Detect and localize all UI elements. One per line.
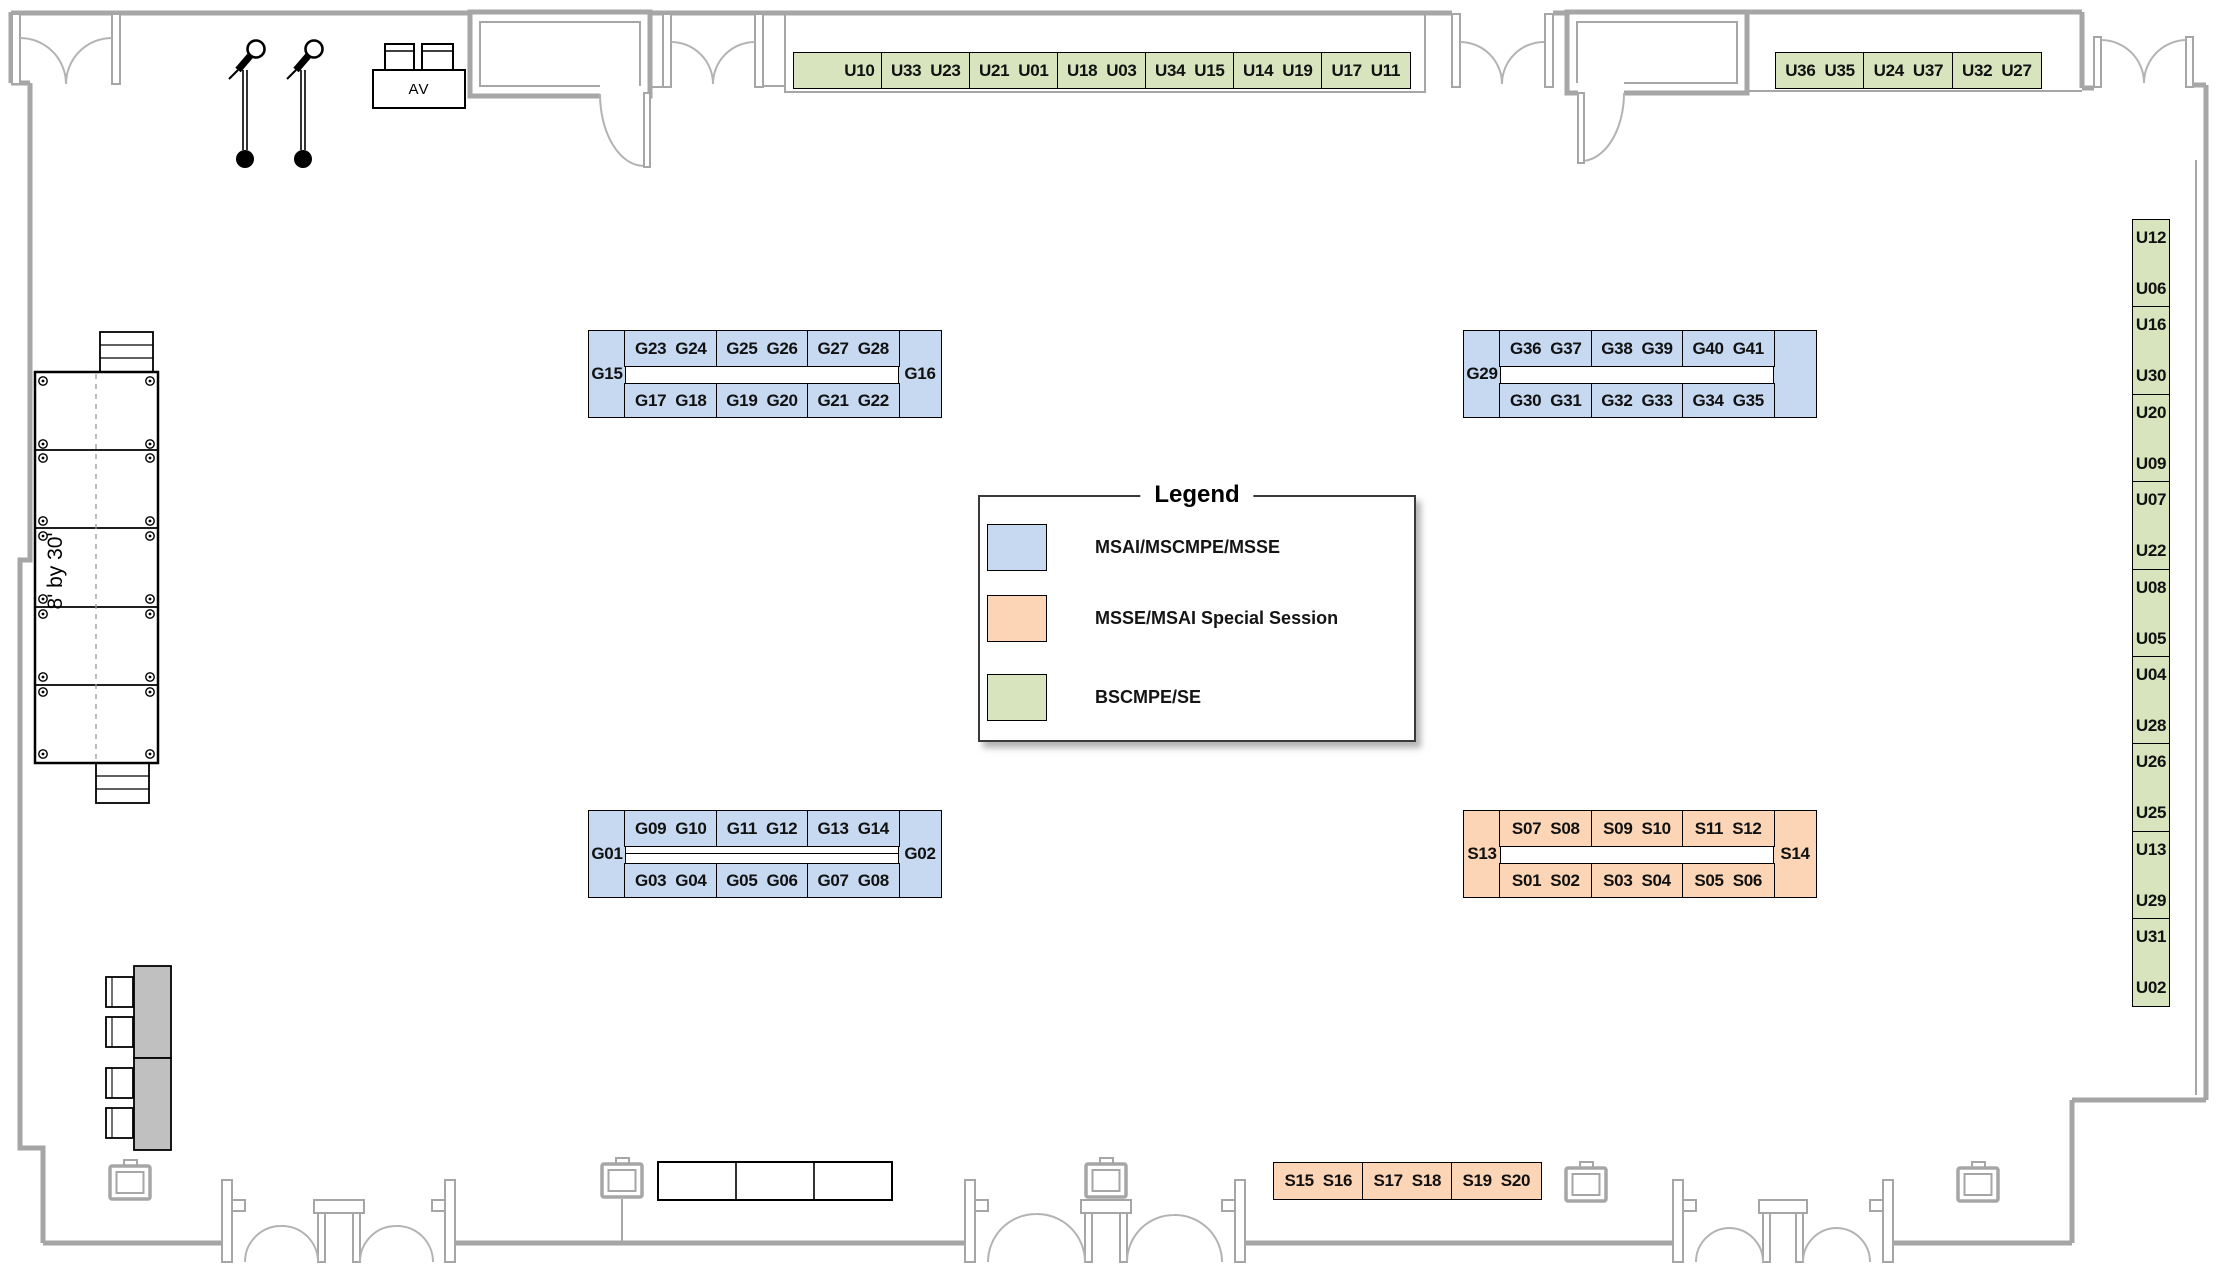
- double-door-top-left: [12, 14, 120, 84]
- av-table-label: AV: [373, 70, 465, 108]
- legend-title: Legend: [1140, 481, 1253, 509]
- booth-label: G05: [726, 871, 757, 891]
- booth-label: G33: [1641, 391, 1672, 411]
- booth-cell: G11G12: [716, 810, 809, 847]
- booth-label: G41: [1733, 339, 1764, 359]
- booth-label: S02: [1550, 871, 1579, 891]
- booth-label: G01: [591, 844, 622, 864]
- booth-label: U28: [2136, 716, 2166, 736]
- booth-cell: U31U02: [2132, 918, 2170, 1007]
- booth-cluster-nw: G15G16G23G24G25G26G27G28G17G18G19G20G21G…: [588, 330, 942, 418]
- booth-cell: G25G26: [716, 330, 809, 367]
- booth-cell: U32U27: [1952, 52, 2042, 89]
- booth-label: S20: [1501, 1171, 1530, 1191]
- booth-label: U21: [979, 61, 1009, 81]
- booth-label: U29: [2136, 891, 2166, 911]
- booth-cell: G02: [898, 810, 942, 898]
- buffet-table: [658, 1162, 892, 1200]
- booth-label: G02: [904, 844, 935, 864]
- legend-item: MSAI/MSCMPE/MSSE: [987, 524, 1280, 571]
- booth-cell: S19S20: [1451, 1162, 1542, 1200]
- booth-label: S08: [1550, 819, 1579, 839]
- booth-label: U03: [1106, 61, 1136, 81]
- booth-label: S11: [1695, 819, 1723, 839]
- booth-cell: G05G06: [716, 863, 809, 898]
- booth-cell: G21G22: [807, 383, 900, 418]
- booth-cell: S01S02: [1499, 863, 1592, 898]
- legend-swatch-icon: [987, 524, 1047, 571]
- booth-label: G28: [858, 339, 889, 359]
- booth-label: U19: [1282, 61, 1312, 81]
- booth-cell: U33U23: [881, 52, 971, 89]
- booth-label: G10: [675, 819, 706, 839]
- booth-strip-top: U10U33U23U21U01U18U03U34U15U14U19U17U11: [793, 52, 1411, 89]
- booth-label: S05: [1694, 871, 1723, 891]
- booth-label: G14: [858, 819, 889, 839]
- booth-label: S12: [1732, 819, 1761, 839]
- booth-label: G24: [675, 339, 706, 359]
- booth-label: U22: [2136, 541, 2166, 561]
- booth-label: G12: [766, 819, 797, 839]
- booth-label: U06: [2136, 279, 2166, 299]
- door-group-bottom-left: [222, 1180, 455, 1262]
- booth-label: U02: [2136, 978, 2166, 998]
- booth-label: G25: [726, 339, 757, 359]
- booth-cell: G07G08: [807, 863, 900, 898]
- trash-cans: [110, 1158, 1998, 1201]
- booth-label: G15: [591, 364, 622, 384]
- legend-swatch-icon: [987, 595, 1047, 642]
- booth-cell: G15: [588, 330, 626, 418]
- booth-label: G27: [817, 339, 848, 359]
- booth-label: G36: [1510, 339, 1541, 359]
- booth-cell: G27G28: [807, 330, 900, 367]
- booth-cluster-se: S13S14S07S08S09S10S11S12S01S02S03S04S05S…: [1463, 810, 1817, 898]
- booth-cell: G17G18: [624, 383, 717, 418]
- booth-label: G32: [1601, 391, 1632, 411]
- booth-cell: G40G41: [1682, 330, 1775, 367]
- trash-can-icon: [1958, 1162, 1998, 1201]
- double-door-top-mid-right: [1452, 14, 1553, 87]
- booth-label: U12: [2136, 228, 2166, 248]
- booth-label: G06: [766, 871, 797, 891]
- chair-icon: [106, 977, 133, 1007]
- booth-label: S16: [1323, 1171, 1352, 1191]
- booth-cluster-ne: G29G36G37G38G39G40G41G30G31G32G33G34G35: [1463, 330, 1817, 418]
- booth-cell: U13U29: [2132, 831, 2170, 920]
- storage-room-left-door: [600, 93, 650, 167]
- booth-cell: U12U06: [2132, 219, 2170, 308]
- booth-label: U37: [1913, 61, 1943, 81]
- booth-cell: U07U22: [2132, 481, 2170, 570]
- booth-cell: G30G31: [1499, 383, 1592, 418]
- booth-label: U07: [2136, 490, 2166, 510]
- chairs: [106, 977, 133, 1138]
- booth-label: U33: [891, 61, 921, 81]
- booth-cell: G09G10: [624, 810, 717, 847]
- booth-cell: G13G14: [807, 810, 900, 847]
- booth-cell: G01: [588, 810, 626, 898]
- booth-label: G19: [726, 391, 757, 411]
- booth-label: U26: [2136, 752, 2166, 772]
- booth-cell: U20U09: [2132, 394, 2170, 483]
- booth-label: G30: [1510, 391, 1541, 411]
- booth-label: G22: [858, 391, 889, 411]
- booth-label: S15: [1284, 1171, 1313, 1191]
- storage-room-left: [470, 12, 650, 96]
- chair-icon: [106, 1108, 133, 1138]
- booth-label: G38: [1601, 339, 1632, 359]
- booth-cell: S07S08: [1499, 810, 1592, 847]
- booth-cell: S11S12: [1682, 810, 1775, 847]
- storage-room-right: [1567, 12, 1747, 93]
- booth-cell: U26U25: [2132, 743, 2170, 832]
- booth-label: U30: [2136, 366, 2166, 386]
- booth-label: G17: [635, 391, 666, 411]
- booth-label: G03: [635, 871, 666, 891]
- stage-size-label: 8' by 30': [44, 501, 70, 641]
- booth-label: U27: [2001, 61, 2031, 81]
- chair-icon: [106, 1068, 133, 1098]
- booth-cell: S03S04: [1591, 863, 1684, 898]
- booth-label: G23: [635, 339, 666, 359]
- stage-steps-bottom: [96, 763, 149, 803]
- booth-label: S17: [1373, 1171, 1402, 1191]
- booth-label: S01: [1512, 871, 1541, 891]
- booth-label: U36: [1785, 61, 1815, 81]
- cluster-divider: [625, 853, 899, 854]
- double-door-top-right: [2094, 37, 2193, 87]
- booth-label: U16: [2136, 315, 2166, 335]
- booth-cluster-sw: G01G02G09G10G11G12G13G14G03G04G05G06G07G…: [588, 810, 942, 898]
- booth-label: G20: [766, 391, 797, 411]
- booth-label: U01: [1018, 61, 1048, 81]
- booth-cell: U17U11: [1321, 52, 1411, 89]
- booth-cell: S14: [1773, 810, 1817, 898]
- booth-label: S18: [1412, 1171, 1441, 1191]
- booth-label: S03: [1603, 871, 1632, 891]
- booth-label: U09: [2136, 454, 2166, 474]
- booth-label: G08: [858, 871, 889, 891]
- booth-label: U25: [2136, 803, 2166, 823]
- booth-cell: G29: [1463, 330, 1501, 418]
- booth-label: G31: [1550, 391, 1581, 411]
- booth-label: G13: [817, 819, 848, 839]
- booth-label: U34: [1155, 61, 1185, 81]
- trash-can-icon: [1086, 1158, 1126, 1197]
- booth-label: S09: [1603, 819, 1632, 839]
- booth-label: G11: [727, 819, 757, 839]
- legend-item-label: MSSE/MSAI Special Session: [1095, 608, 1338, 629]
- booth-cell: U10: [793, 52, 883, 89]
- floor-plan: 8' by 30' AV U10U33U23U21U01U18U03U34U15…: [0, 0, 2219, 1275]
- booth-label: G29: [1466, 364, 1497, 384]
- booth-cell: G03G04: [624, 863, 717, 898]
- booth-cell: S05S06: [1682, 863, 1775, 898]
- door-group-bottom-right: [1673, 1180, 1893, 1262]
- booth-label: U32: [1962, 61, 1992, 81]
- booth-label: G04: [675, 871, 706, 891]
- registration-tables: [134, 966, 171, 1150]
- booth-label: S19: [1462, 1171, 1491, 1191]
- booth-cell: U14U19: [1233, 52, 1323, 89]
- chair-icon: [106, 1017, 133, 1047]
- booth-label: U04: [2136, 665, 2166, 685]
- booth-label: G07: [817, 871, 848, 891]
- booth-label: U24: [1874, 61, 1904, 81]
- booth-cell: G34G35: [1682, 383, 1775, 418]
- booth-label: U17: [1331, 61, 1361, 81]
- booth-cell: U21U01: [969, 52, 1059, 89]
- booth-label: U10: [844, 61, 874, 81]
- booth-cell: G23G24: [624, 330, 717, 367]
- booth-cell: U16U30: [2132, 306, 2170, 395]
- booth-strip-right: U12U06U16U30U20U09U07U22U08U05U04U28U26U…: [2132, 219, 2170, 1007]
- double-door-top-mid-left: [663, 14, 763, 87]
- booth-strip-south: S15S16S17S18S19S20: [1273, 1162, 1542, 1200]
- booth-cell: S13: [1463, 810, 1501, 898]
- legend-swatch-icon: [987, 674, 1047, 721]
- booth-label: G21: [817, 391, 848, 411]
- booth-cell: G16: [898, 330, 942, 418]
- booth-label: G16: [904, 364, 935, 384]
- booth-cell: S15S16: [1273, 1162, 1364, 1200]
- booth-label: G09: [635, 819, 666, 839]
- booth-label: G18: [675, 391, 706, 411]
- microphone-icon: [229, 41, 265, 169]
- booth-label: U20: [2136, 403, 2166, 423]
- booth-cell: [1773, 330, 1817, 418]
- booth-cell: G36G37: [1499, 330, 1592, 367]
- booth-cell: S09S10: [1591, 810, 1684, 847]
- booth-label: U13: [2136, 840, 2166, 860]
- booth-label: G35: [1733, 391, 1764, 411]
- booth-label: U18: [1067, 61, 1097, 81]
- booth-label: U31: [2136, 927, 2166, 947]
- booth-label: G34: [1692, 391, 1723, 411]
- booth-label: G40: [1692, 339, 1723, 359]
- booth-label: U11: [1371, 61, 1400, 81]
- microphone-icon: [287, 41, 323, 169]
- booth-cell: U34U15: [1145, 52, 1235, 89]
- interior-wall-lines: [650, 13, 2196, 1095]
- booth-label: U14: [1243, 61, 1273, 81]
- booth-cell: G38G39: [1591, 330, 1684, 367]
- booth-label: U15: [1194, 61, 1224, 81]
- booth-label: S14: [1780, 844, 1809, 864]
- booth-label: G39: [1641, 339, 1672, 359]
- booth-cell: U04U28: [2132, 656, 2170, 745]
- booth-label: U23: [930, 61, 960, 81]
- booth-cell: U36U35: [1775, 52, 1865, 89]
- booth-cell: U24U37: [1863, 52, 1953, 89]
- stage-steps-top: [100, 332, 153, 372]
- booth-label: S06: [1733, 871, 1762, 891]
- booth-label: U05: [2136, 629, 2166, 649]
- trash-can-icon: [1566, 1162, 1606, 1201]
- booth-label: G37: [1550, 339, 1581, 359]
- trash-can-icon: [110, 1160, 150, 1199]
- booth-label: U08: [2136, 578, 2166, 598]
- storage-room-right-door: [1578, 93, 1624, 163]
- booth-label: S04: [1641, 871, 1670, 891]
- legend-item-label: MSAI/MSCMPE/MSSE: [1095, 537, 1280, 558]
- booth-label: S13: [1467, 844, 1496, 864]
- trash-can-icon: [602, 1158, 642, 1197]
- legend-item: BSCMPE/SE: [987, 674, 1201, 721]
- booth-label: S10: [1641, 819, 1670, 839]
- booth-cell: U08U05: [2132, 569, 2170, 658]
- booth-cell: G32G33: [1591, 383, 1684, 418]
- legend: Legend MSAI/MSCMPE/MSSEMSSE/MSAI Special…: [978, 495, 1416, 742]
- booth-strip-top-right: U36U35U24U37U32U27: [1775, 52, 2042, 89]
- legend-item-label: BSCMPE/SE: [1095, 687, 1201, 708]
- booth-label: U35: [1825, 61, 1855, 81]
- booth-cell: U18U03: [1057, 52, 1147, 89]
- booth-cell: S17S18: [1362, 1162, 1453, 1200]
- legend-item: MSSE/MSAI Special Session: [987, 595, 1338, 642]
- booth-label: G26: [766, 339, 797, 359]
- booth-label: S07: [1512, 819, 1541, 839]
- booth-cell: G19G20: [716, 383, 809, 418]
